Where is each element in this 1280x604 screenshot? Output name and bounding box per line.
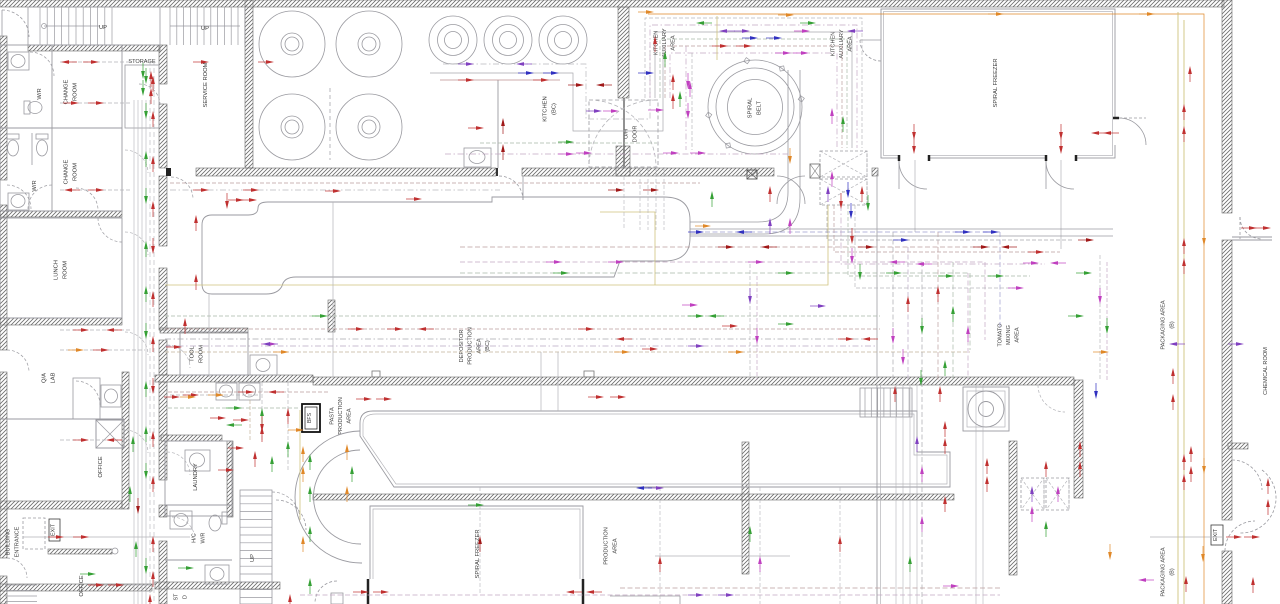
svg-text:BFS: BFS bbox=[307, 412, 313, 423]
svg-text:LUNCH: LUNCH bbox=[54, 260, 60, 280]
svg-text:Q/A: Q/A bbox=[42, 373, 48, 383]
svg-text:ENTRANCE: ENTRANCE bbox=[14, 526, 20, 557]
svg-text:CHANGE: CHANGE bbox=[64, 159, 70, 184]
svg-text:AREA: AREA bbox=[1015, 327, 1021, 343]
svg-text:AREA: AREA bbox=[671, 35, 677, 51]
svg-text:SERVICE ROOM: SERVICE ROOM bbox=[203, 62, 209, 107]
svg-text:CHEMICAL ROOM: CHEMICAL ROOM bbox=[1263, 347, 1269, 395]
svg-text:UP: UP bbox=[201, 26, 209, 32]
svg-text:TOOL: TOOL bbox=[190, 345, 196, 361]
svg-text:DOOR: DOOR bbox=[632, 126, 638, 143]
svg-text:ROOM: ROOM bbox=[62, 261, 68, 279]
svg-text:(B): (B) bbox=[1169, 568, 1175, 576]
svg-text:AREA: AREA bbox=[347, 408, 353, 424]
svg-text:ST: ST bbox=[174, 593, 180, 601]
svg-text:OFFICE: OFFICE bbox=[98, 456, 104, 477]
svg-text:PASTA: PASTA bbox=[329, 407, 335, 425]
svg-text:SPIRAL: SPIRAL bbox=[748, 97, 754, 118]
svg-text:AREA: AREA bbox=[848, 36, 854, 52]
svg-text:PACKAGING AREA: PACKAGING AREA bbox=[1161, 547, 1167, 597]
svg-text:D: D bbox=[182, 595, 188, 599]
svg-text:PACKAGING AREA: PACKAGING AREA bbox=[1161, 300, 1167, 350]
svg-text:W/R: W/R bbox=[200, 533, 206, 544]
svg-text:STORAGE: STORAGE bbox=[128, 59, 156, 65]
svg-text:CHANGE: CHANGE bbox=[64, 79, 70, 104]
svg-text:ROOM: ROOM bbox=[72, 163, 78, 181]
svg-text:AREA: AREA bbox=[612, 538, 618, 554]
svg-text:LAB: LAB bbox=[50, 372, 56, 383]
svg-text:BELT: BELT bbox=[756, 101, 762, 116]
svg-text:ROOM: ROOM bbox=[72, 83, 78, 101]
svg-text:BUILDING: BUILDING bbox=[6, 529, 12, 555]
svg-text:SPIRAL FREEZER: SPIRAL FREEZER bbox=[993, 58, 999, 107]
svg-text:MIXING: MIXING bbox=[1006, 325, 1012, 345]
svg-text:EXIT: EXIT bbox=[1213, 528, 1219, 541]
svg-text:PRODUCTION: PRODUCTION bbox=[604, 527, 610, 565]
svg-text:W/R: W/R bbox=[37, 88, 43, 99]
svg-text:OFFICE: OFFICE bbox=[79, 575, 85, 596]
svg-text:PRODUCTION: PRODUCTION bbox=[338, 397, 344, 435]
svg-text:(B): (B) bbox=[1169, 321, 1175, 329]
svg-text:EXIT: EXIT bbox=[51, 523, 57, 536]
svg-text:(BC): (BC) bbox=[551, 103, 557, 115]
svg-text:KITCHEN: KITCHEN bbox=[543, 96, 549, 121]
svg-text:KITCHEN: KITCHEN bbox=[830, 32, 836, 57]
svg-text:UP: UP bbox=[250, 554, 256, 562]
svg-text:UP: UP bbox=[99, 25, 107, 31]
svg-text:ROOM: ROOM bbox=[198, 345, 204, 363]
svg-text:TOMATO: TOMATO bbox=[997, 323, 1003, 347]
